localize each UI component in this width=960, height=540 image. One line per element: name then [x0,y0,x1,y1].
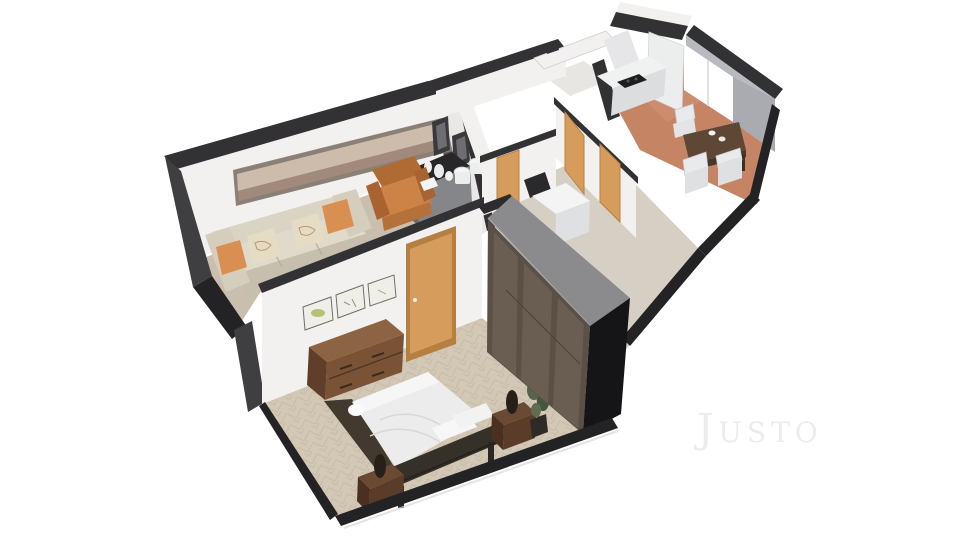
lamp-left [374,454,386,478]
table-vase-2 [719,137,726,142]
small-frame-1-art [311,309,325,317]
toilet-base [455,172,470,184]
lamp-right [506,390,518,414]
table-leg-2 [742,155,745,171]
vase-2 [434,164,444,178]
wardrobe-panel-1 [492,232,518,376]
west-wall-band-bedroom [234,321,265,412]
floor-plan-canvas: Justo [0,0,960,540]
burner-1 [627,80,630,83]
table-vase-1 [709,131,716,136]
watermark-text: Justo [693,406,822,452]
burner-2 [635,78,638,81]
floor-plan-render: Justo [0,0,960,540]
bedroom-door-handle [413,298,417,302]
bedroom-door [406,226,456,362]
vase-3 [445,171,453,181]
plant-leaves-3 [531,403,541,417]
entrance-se-band-a [698,192,760,256]
dining-chair-front-left [683,152,708,194]
bed-pillow-small [348,404,364,416]
bedroom-door-leaf [410,233,452,354]
